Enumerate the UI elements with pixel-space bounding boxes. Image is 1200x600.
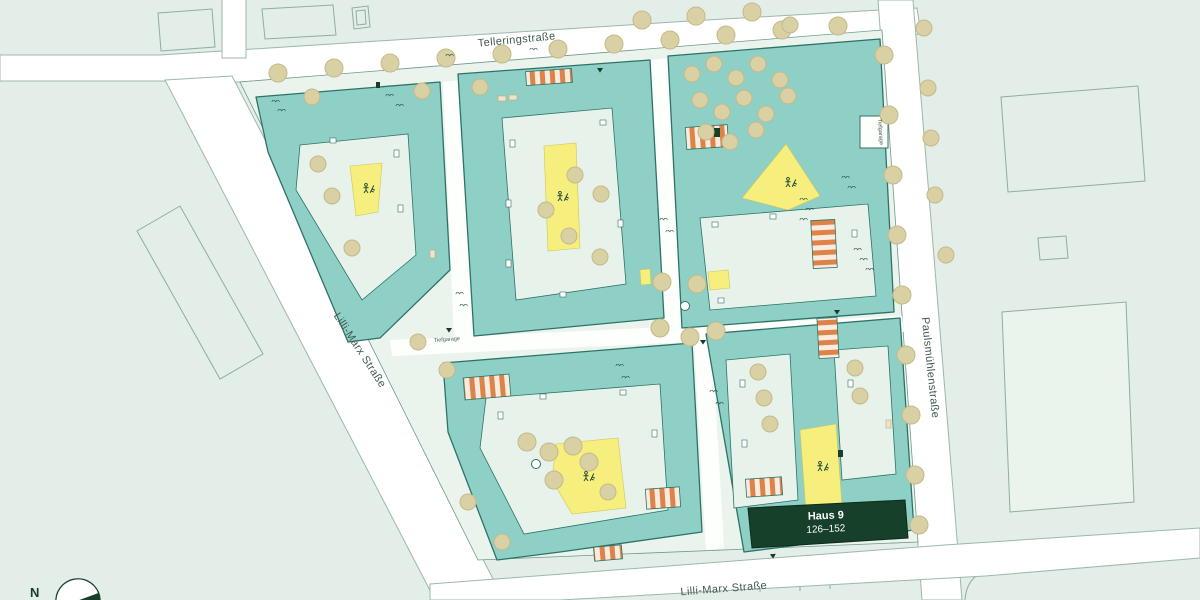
north-indicator: N [30, 585, 39, 600]
compass: N [30, 579, 100, 600]
haus9-name: Haus 9 [808, 509, 845, 523]
round-marker [681, 302, 690, 311]
site-plan-page: Haus 9 126–152 Tiefgarage Tiefgarage Tel… [0, 0, 1200, 600]
street-side-lane [222, 0, 246, 58]
round-marker [532, 460, 541, 469]
site-plan-map: Haus 9 126–152 Tiefgarage Tiefgarage Tel… [0, 0, 1200, 600]
building-blocks [256, 39, 914, 560]
haus9-number-range: 126–152 [806, 523, 846, 536]
play-area-e [800, 424, 842, 512]
